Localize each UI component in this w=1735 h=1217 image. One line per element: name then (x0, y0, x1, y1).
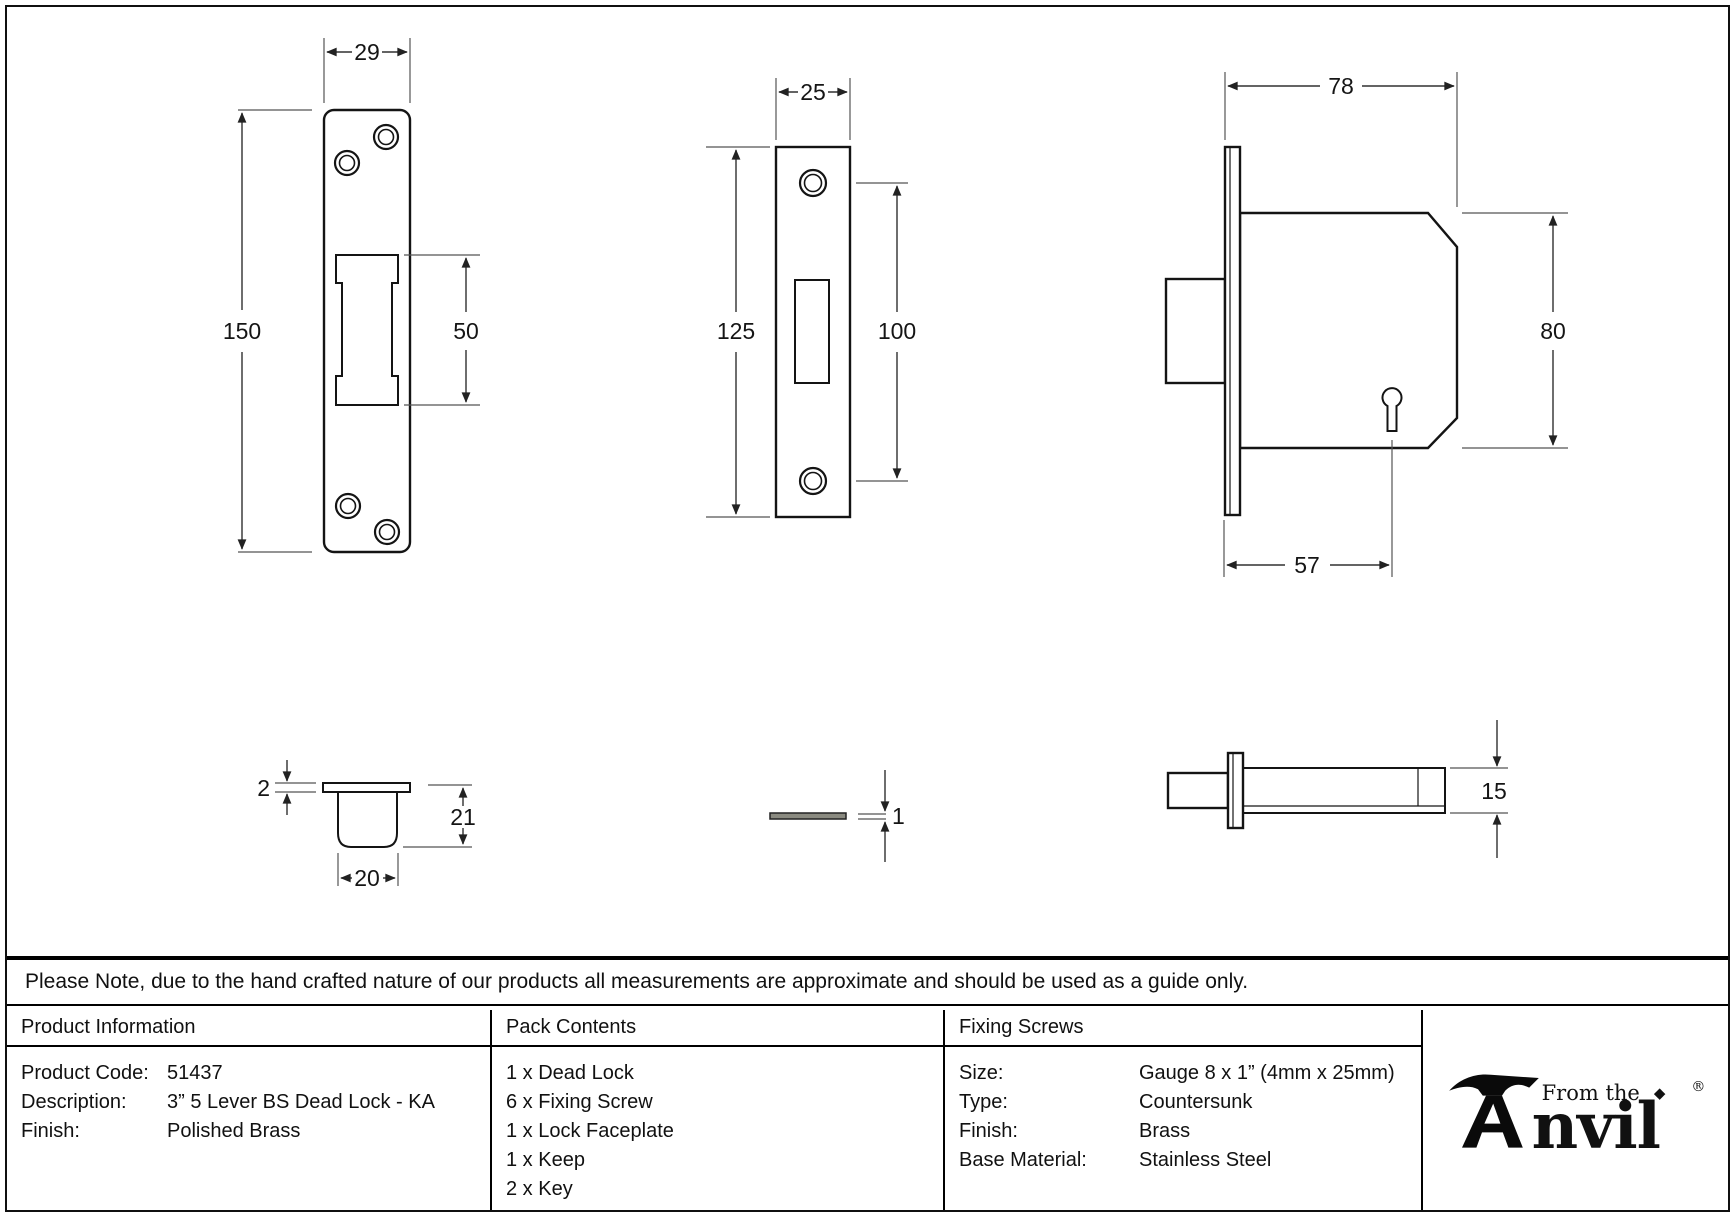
fixing-screws-column: Fixing Screws Size: Gauge 8 x 1” (4mm x … (945, 1010, 1423, 1210)
finish-value: Polished Brass (167, 1117, 300, 1146)
list-item: 2 x Key (506, 1175, 929, 1204)
lock-body-side-drawing: 78 80 57 (1166, 72, 1568, 578)
pack-contents-header: Pack Contents (492, 1010, 943, 1047)
dim-label-faceplate-width: 25 (800, 79, 826, 105)
list-item: 1 x Lock Faceplate (506, 1117, 929, 1146)
pack-contents-column: Pack Contents 1 x Dead Lock 6 x Fixing S… (492, 1010, 945, 1210)
table-row: Product Code: 51437 (21, 1059, 476, 1088)
technical-drawings: 29 150 50 25 125 100 (0, 0, 1735, 956)
table-row: Type: Countersunk (959, 1088, 1407, 1117)
table-row: Size: Gauge 8 x 1” (4mm x 25mm) (959, 1059, 1407, 1088)
row-label: Finish: (21, 1117, 167, 1146)
row-label: Finish: (959, 1117, 1139, 1146)
lock-body-top-drawing: 15 (1168, 720, 1508, 858)
description-value: 3” 5 Lever BS Dead Lock - KA (167, 1088, 435, 1117)
faceplate-edge-drawing: 1 (770, 770, 905, 862)
fixing-screws-header: Fixing Screws (945, 1010, 1421, 1047)
product-information-header: Product Information (7, 1010, 490, 1047)
note-text: Please Note, due to the hand crafted nat… (25, 970, 1248, 994)
screw-size-value: Gauge 8 x 1” (4mm x 25mm) (1139, 1059, 1395, 1088)
anvil-icon (1446, 1062, 1542, 1158)
keep-front-drawing: 29 150 50 (223, 38, 480, 552)
logo-brand-text: nvil (1532, 1097, 1706, 1158)
table-row: Finish: Polished Brass (21, 1117, 476, 1146)
dim-label-box-width: 20 (354, 865, 380, 891)
dim-label-keep-cutout: 50 (453, 318, 479, 344)
dim-label-body-backset: 57 (1294, 552, 1320, 578)
list-item: 6 x Fixing Screw (506, 1088, 929, 1117)
brand-column: From the ◆ ® nvil (1423, 1010, 1728, 1210)
row-label: Product Code: (21, 1059, 167, 1088)
dim-label-case-thickness: 15 (1481, 778, 1507, 804)
row-label: Description: (21, 1088, 167, 1117)
screw-type-value: Countersunk (1139, 1088, 1252, 1117)
screw-material-value: Stainless Steel (1139, 1146, 1271, 1175)
list-item: 1 x Dead Lock (506, 1059, 929, 1088)
row-label: Base Material: (959, 1146, 1139, 1175)
lock-faceplate-front-drawing: 25 125 100 (706, 78, 916, 517)
screw-finish-value: Brass (1139, 1117, 1190, 1146)
keep-box-side-drawing: 2 21 20 (257, 760, 476, 891)
table-row: Finish: Brass (959, 1117, 1407, 1146)
list-item: 1 x Keep (506, 1146, 929, 1175)
product-information-column: Product Information Product Code: 51437 … (7, 1010, 492, 1210)
dim-label-box-depth: 21 (450, 804, 476, 830)
product-code-value: 51437 (167, 1059, 223, 1088)
registered-trademark-icon: ® (1691, 1079, 1705, 1095)
dim-label-faceplate-height: 125 (717, 318, 755, 344)
dim-label-faceplate-holes: 100 (878, 318, 916, 344)
dim-label-keep-width: 29 (354, 39, 380, 65)
dim-label-body-height: 80 (1540, 318, 1566, 344)
dim-label-keep-height: 150 (223, 318, 261, 344)
dim-label-plate-thickness: 1 (892, 803, 905, 829)
from-the-anvil-logo: From the ◆ ® nvil (1446, 1062, 1706, 1158)
dim-label-box-flange: 2 (257, 775, 270, 801)
table-row: Base Material: Stainless Steel (959, 1146, 1407, 1175)
row-label: Size: (959, 1059, 1139, 1088)
spec-table: Product Information Product Code: 51437 … (7, 1010, 1728, 1210)
table-row: Description: 3” 5 Lever BS Dead Lock - K… (21, 1088, 476, 1117)
row-label: Type: (959, 1088, 1139, 1117)
dim-label-body-width: 78 (1328, 73, 1354, 99)
measurement-note: Please Note, due to the hand crafted nat… (7, 956, 1728, 1006)
